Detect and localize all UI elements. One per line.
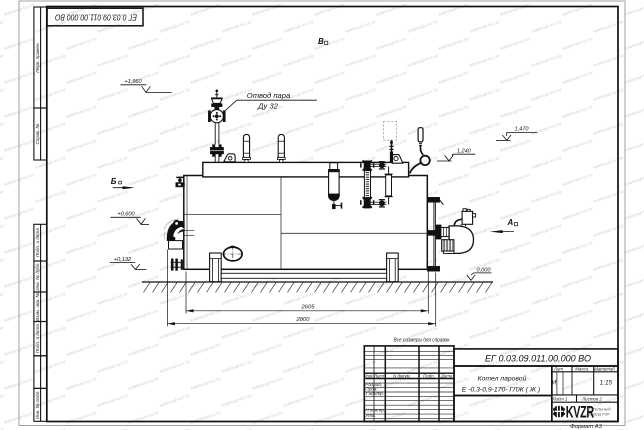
svg-text:+0,600: +0,600 bbox=[117, 212, 135, 218]
svg-text:1,470: 1,470 bbox=[515, 127, 530, 133]
svg-text:Е -0,3-0,9-170- ГЛЖ ( Ж ): Е -0,3-0,9-170- ГЛЖ ( Ж ) bbox=[462, 387, 540, 394]
svg-text:1,240: 1,240 bbox=[457, 149, 472, 155]
svg-text:N докум.: N докум. bbox=[393, 373, 411, 378]
svg-text:Справ. №: Справ. № bbox=[35, 124, 40, 145]
svg-text:А: А bbox=[507, 218, 514, 227]
svg-text:+1,960: +1,960 bbox=[124, 79, 142, 85]
svg-text:Подп. и дата: Подп. и дата bbox=[35, 228, 40, 257]
svg-text:Формат А3: Формат А3 bbox=[570, 424, 602, 430]
svg-text:Масштаб: Масштаб bbox=[594, 367, 615, 372]
svg-text:ЗАВОД РЭР: ЗАВОД РЭР bbox=[589, 412, 610, 416]
svg-text:Лист: Лист bbox=[373, 373, 386, 378]
svg-text:Отвод пара: Отвод пара bbox=[247, 91, 290, 100]
svg-text:Б: Б bbox=[111, 177, 117, 186]
svg-text:Подп. и дата: Подп. и дата bbox=[35, 324, 40, 353]
svg-text:Т.контр.: Т.контр. bbox=[365, 391, 384, 396]
svg-text:Утв.: Утв. bbox=[365, 413, 376, 418]
svg-text:КОТЕЛЬНЫЙ: КОТЕЛЬНЫЙ bbox=[587, 407, 611, 411]
svg-text:Н.контр.: Н.контр. bbox=[365, 407, 385, 412]
svg-text:Перв. примен.: Перв. примен. bbox=[35, 42, 40, 73]
svg-text:ЕГ 0.03.09.011.00.000 ВО: ЕГ 0.03.09.011.00.000 ВО bbox=[55, 13, 137, 22]
svg-text:Лит: Лит bbox=[553, 367, 563, 372]
svg-text:В: В bbox=[318, 37, 324, 46]
svg-text:ЕГ 0.03.09.011.00.000 ВО: ЕГ 0.03.09.011.00.000 ВО bbox=[485, 353, 591, 363]
svg-text:Изм.: Изм. bbox=[364, 373, 373, 378]
svg-text:И: И bbox=[552, 380, 557, 387]
svg-text:Подп.: Подп. bbox=[423, 373, 435, 378]
svg-text:Взам. инв. №: Взам. инв. № bbox=[35, 292, 40, 320]
svg-text:Инв. № дубл.: Инв. № дубл. bbox=[35, 262, 40, 290]
svg-text:1:15: 1:15 bbox=[600, 380, 613, 387]
svg-text:2800: 2800 bbox=[296, 317, 311, 323]
svg-text:Инв. № подл.: Инв. № подл. bbox=[35, 391, 40, 420]
svg-text:Котел паровой: Котел паровой bbox=[478, 375, 527, 383]
svg-text:Дата: Дата bbox=[440, 373, 453, 378]
svg-text:Все размеры для справок: Все размеры для справок bbox=[394, 337, 451, 343]
svg-text:Масса: Масса bbox=[575, 367, 589, 372]
svg-text:Ду 32: Ду 32 bbox=[257, 102, 279, 111]
svg-text:2605: 2605 bbox=[301, 304, 316, 310]
